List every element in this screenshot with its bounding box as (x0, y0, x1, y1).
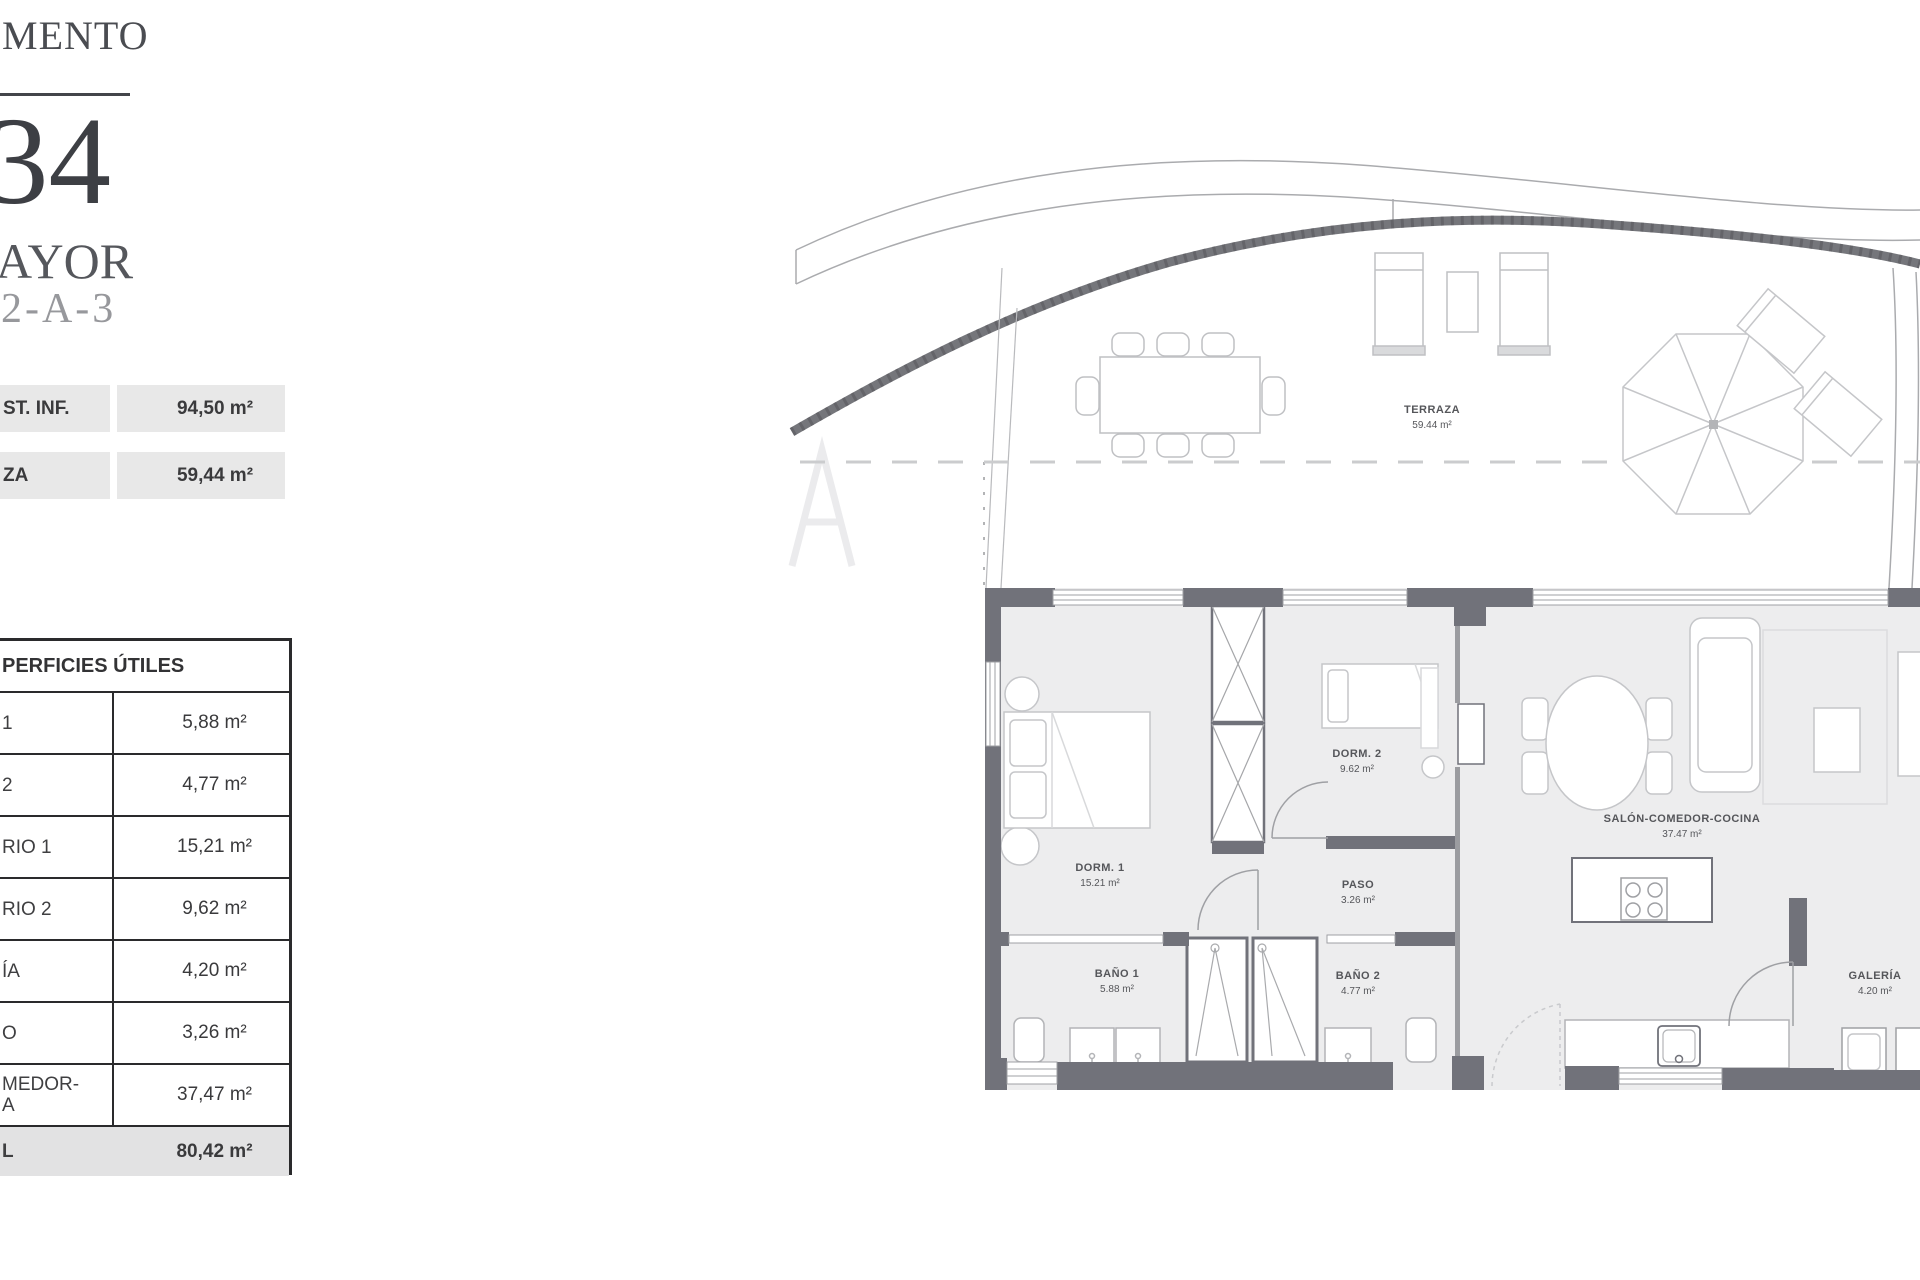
sun-loungers (1373, 253, 1550, 355)
showers (1187, 938, 1317, 1062)
room-label-dorm1: DORM. 1 15.21 m² (1075, 860, 1124, 892)
wardrobes (1212, 606, 1264, 842)
floorplan-sheet: MENTO 34 AYOR -2-A-3 ST. INF. 94,50 m² Z… (0, 0, 1920, 1280)
room-label-bano1: BAÑO 1 5.88 m² (1095, 966, 1140, 998)
parasol (1623, 289, 1882, 514)
floor-plan-drawing (0, 0, 1920, 1280)
room-label-terraza: TERRAZA 59.44 m² (1404, 402, 1460, 434)
galeria-fixtures (1842, 1028, 1920, 1074)
room-label-galeria: GALERÍA 4.20 m² (1849, 968, 1902, 1000)
dining-table (1076, 333, 1285, 457)
room-label-dorm2: DORM. 2 9.62 m² (1332, 746, 1381, 778)
room-label-salon: SALÓN-COMEDOR-COCINA 37.47 m² (1604, 811, 1761, 843)
room-label-bano2: BAÑO 2 4.77 m² (1336, 968, 1381, 1000)
watermark (792, 450, 852, 566)
room-label-paso: PASO 3.26 m² (1341, 877, 1375, 909)
